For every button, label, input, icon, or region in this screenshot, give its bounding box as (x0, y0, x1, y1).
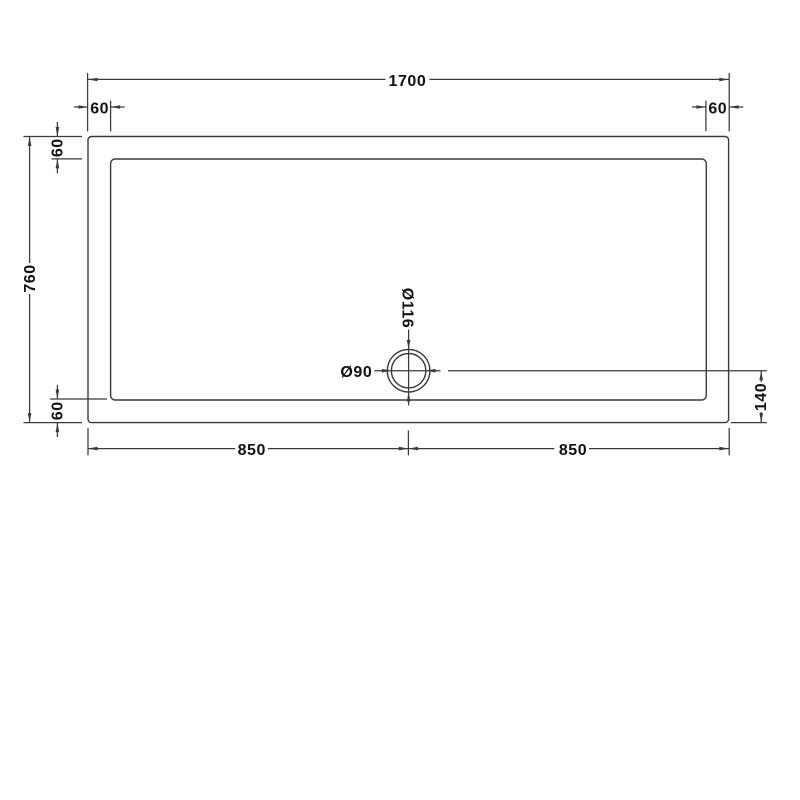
svg-text:850: 850 (559, 442, 587, 459)
svg-text:850: 850 (238, 442, 266, 459)
svg-text:60: 60 (50, 401, 67, 420)
svg-text:Ø90: Ø90 (340, 364, 372, 381)
svg-text:Ø116: Ø116 (398, 288, 415, 328)
svg-text:1700: 1700 (389, 73, 427, 90)
svg-text:60: 60 (50, 138, 67, 157)
svg-text:760: 760 (22, 264, 39, 292)
svg-text:60: 60 (90, 100, 109, 117)
svg-text:60: 60 (708, 100, 727, 117)
svg-text:140: 140 (753, 383, 770, 411)
